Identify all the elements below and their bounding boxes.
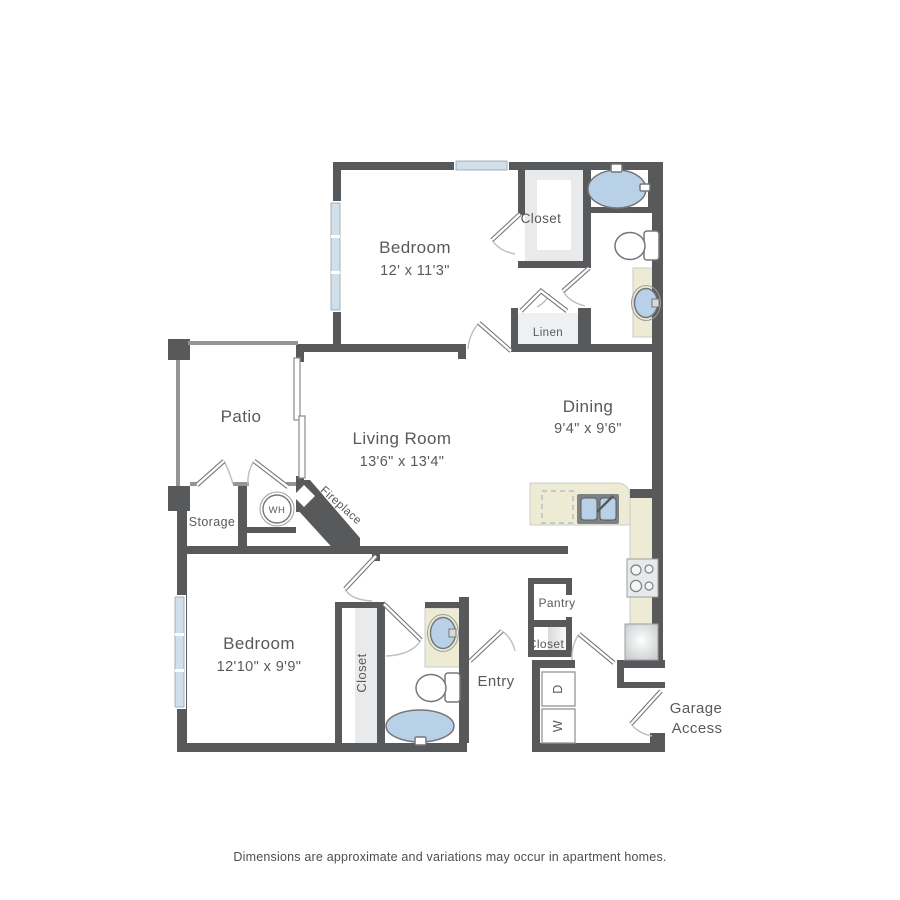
bathtub-icon [386,710,454,745]
door-swing [563,268,589,306]
toilet-icon [416,673,460,702]
sliding-door [294,358,305,478]
bedroom2-label: Bedroom [223,634,295,653]
stove-icon [627,559,658,597]
storage-label: Storage [189,515,236,529]
door-swing [572,634,614,663]
door-swing [492,214,520,254]
refrigerator-icon [625,624,658,660]
bedroom1-label: Bedroom [379,238,451,257]
floor-plan-page: WH [0,0,900,900]
door-swing [384,604,421,656]
sink-icon [632,286,661,321]
closet2-label: Closet [354,653,369,692]
dining-label: Dining [563,397,614,416]
door-swing [470,631,515,661]
linen-label: Linen [533,327,563,339]
dining-dims: 9'4" x 9'6" [554,421,622,437]
bathtub-icon [588,164,650,208]
window [329,201,342,312]
water-heater-icon: WH [260,492,294,526]
dryer-label: D [551,684,565,693]
door-swing [631,691,661,736]
door-swing [345,556,376,601]
closet1-label: Closet [521,211,562,226]
toilet-icon [615,231,659,260]
kitchen-sink-icon [577,494,619,524]
door-swing [468,323,511,351]
door-swing [197,461,233,485]
disclaimer-text: Dimensions are approximate and variation… [233,850,666,864]
pantry-label: Pantry [538,596,575,610]
patio-label: Patio [221,407,262,426]
floor-plan-drawing: WH [0,0,900,900]
door-swing [248,461,288,487]
washer-label: W [551,720,565,732]
bedroom1-dims: 12' x 11'3" [380,263,450,279]
washer-icon: W [542,709,575,743]
entry-closet-label: Closet [528,637,565,651]
window [454,159,509,172]
garage-access-label-line1: Garage [670,700,722,717]
sink-icon [428,615,459,652]
bifold-door [521,291,567,311]
water-heater-label: WH [269,505,286,516]
garage-access-label-line2: Access [672,720,723,737]
bedroom2-dims: 12'10" x 9'9" [217,659,302,675]
dryer-icon: D [542,672,575,706]
living-room-label: Living Room [353,429,452,448]
entry-label: Entry [477,673,514,690]
living-room-dims: 13'6" x 13'4" [360,454,445,470]
window [173,595,186,709]
